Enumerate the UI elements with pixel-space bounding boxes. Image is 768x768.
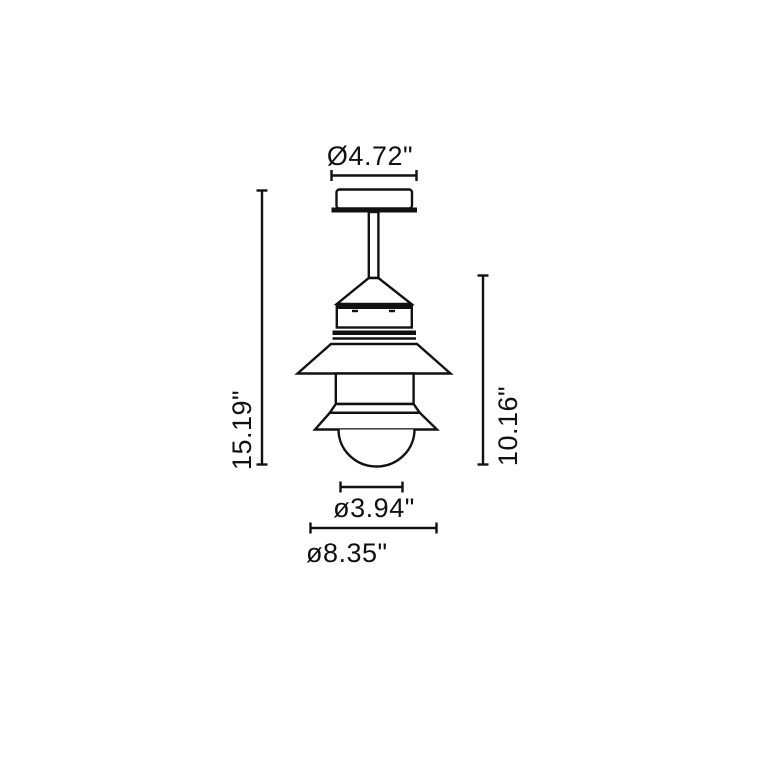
glass-dome: [339, 430, 415, 467]
label-overall-height: 15.19": [227, 375, 257, 485]
rib-band-upper: [333, 331, 417, 336]
flare-ring: [330, 404, 420, 413]
upper-cone: [337, 278, 412, 304]
dim-line-fixture-height: [478, 276, 489, 465]
dim-line-canopy-diameter: [331, 170, 417, 181]
dim-line-overall-height: [257, 191, 268, 465]
label-shade-diameter: ø8.35": [306, 538, 388, 568]
dim-line-diffuser-diameter: [340, 482, 403, 493]
stem: [369, 212, 379, 278]
top-shade: [298, 344, 451, 374]
bottom-shade: [315, 413, 437, 430]
ceiling-lamp-outline: [298, 190, 451, 467]
body-cylinder: [336, 374, 414, 405]
label-canopy-diameter: Ø4.72": [270, 141, 470, 171]
lamp-dimension-drawing: [0, 0, 768, 768]
ceiling-canopy: [337, 190, 413, 209]
dim-line-shade-diameter: [310, 523, 437, 534]
label-diffuser-diameter: ø3.94": [274, 493, 474, 523]
technical-drawing-page: Ø4.72" 15.19" 10.16" ø3.94" ø8.35": [0, 0, 768, 768]
label-fixture-height: 10.16": [493, 371, 523, 481]
